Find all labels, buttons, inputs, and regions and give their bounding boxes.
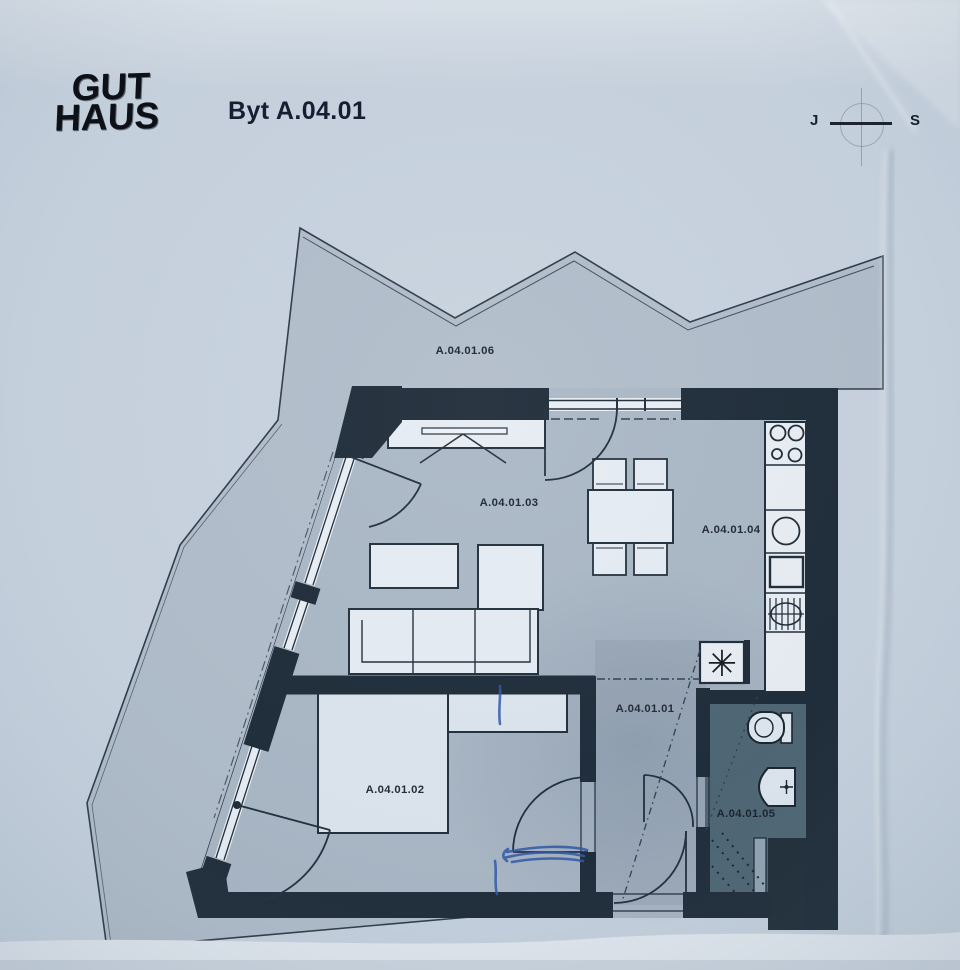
compass-letter-j: J xyxy=(810,112,818,129)
page-title: Byt A.04.01 xyxy=(228,97,366,126)
logo-line-2: HAUS xyxy=(54,101,185,135)
compass-axis-line xyxy=(861,88,862,166)
compass-letter-s: S xyxy=(910,112,920,129)
gut-haus-logo: GUT HAUS xyxy=(54,70,187,134)
north-indicator: J S xyxy=(802,98,930,158)
compass-needle-line xyxy=(830,122,892,125)
floorplan-photo: ✳ xyxy=(0,0,960,970)
compass-circle-icon xyxy=(840,103,884,147)
